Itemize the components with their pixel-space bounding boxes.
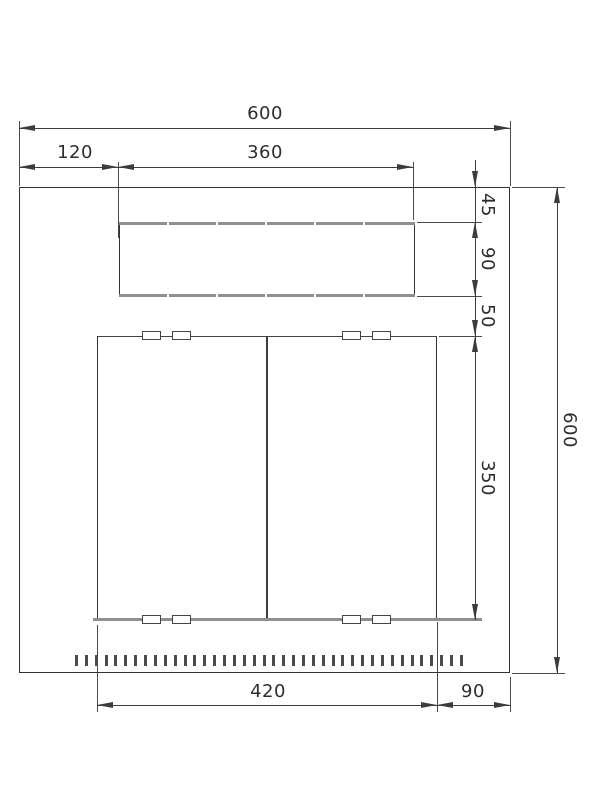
perforation-slot xyxy=(124,655,127,666)
perforation-slot xyxy=(312,655,315,666)
latch-slot xyxy=(342,615,361,624)
dimension-label: 420 xyxy=(250,682,286,702)
perforation-slot xyxy=(381,655,384,666)
perforation-slot xyxy=(332,655,335,666)
top-slot-upper-edge xyxy=(119,222,415,225)
latch-slot xyxy=(372,331,391,340)
arrowhead-icon xyxy=(19,164,35,170)
perforation-slot xyxy=(85,655,88,666)
arrowhead-icon xyxy=(472,280,478,296)
arrowhead-icon xyxy=(472,222,478,238)
dimension-line xyxy=(19,128,510,129)
edge-tick-mark xyxy=(363,294,365,297)
dimension-line xyxy=(19,167,413,168)
perforation-slot xyxy=(430,655,433,666)
top-slot-lower-edge xyxy=(119,294,415,297)
perforation-slot xyxy=(223,655,226,666)
perforation-slot xyxy=(322,655,325,666)
extension-line xyxy=(97,625,98,712)
arrowhead-icon xyxy=(102,164,118,170)
perforation-slot xyxy=(193,655,196,666)
center-divider-line xyxy=(266,336,267,620)
technical-drawing-canvas: 600 120 360 45 90 50 350 600 420 xyxy=(0,0,600,800)
perforation-slot xyxy=(371,655,374,666)
edge-tick-mark xyxy=(265,222,267,225)
edge-tick-mark xyxy=(363,222,365,225)
perforation-slot xyxy=(105,655,108,666)
perforation-slot xyxy=(164,655,167,666)
edge-tick-mark xyxy=(167,222,169,225)
extension-line xyxy=(437,622,438,712)
perforation-slot xyxy=(233,655,236,666)
edge-tick-mark xyxy=(167,294,169,297)
arrowhead-icon xyxy=(472,171,478,187)
perforation-slot xyxy=(351,655,354,666)
arrowhead-icon xyxy=(97,702,113,708)
dimension-label: 90 xyxy=(461,682,485,702)
latch-slot xyxy=(172,615,191,624)
dimension-label: 360 xyxy=(247,143,283,163)
arrowhead-icon xyxy=(397,164,413,170)
perforation-slot xyxy=(391,655,394,666)
top-slot-rectangle xyxy=(119,224,415,296)
perforation-slot xyxy=(460,655,463,666)
dimension-label: 90 xyxy=(477,247,497,271)
dimension-label: 600 xyxy=(247,104,283,124)
dimension-label: 50 xyxy=(477,304,497,328)
perforation-slot xyxy=(282,655,285,666)
arrowhead-icon xyxy=(19,125,35,131)
dimension-line xyxy=(557,187,558,673)
edge-tick-mark xyxy=(216,294,218,297)
perforation-slot xyxy=(302,655,305,666)
perforation-slot xyxy=(144,655,147,666)
perforation-slot xyxy=(184,655,187,666)
dimension-label: 600 xyxy=(559,412,579,448)
perforation-slot xyxy=(401,655,404,666)
latch-slot xyxy=(372,615,391,624)
edge-tick-mark xyxy=(314,222,316,225)
latch-slot xyxy=(142,615,161,624)
perforation-slot xyxy=(114,655,117,666)
dimension-label: 45 xyxy=(477,193,497,217)
arrowhead-icon xyxy=(554,187,560,203)
perforation-slot xyxy=(213,655,216,666)
perforation-slot xyxy=(292,655,295,666)
perforation-slot xyxy=(361,655,364,666)
perforation-slot xyxy=(411,655,414,666)
arrowhead-icon xyxy=(472,336,478,352)
arrowhead-icon xyxy=(472,604,478,620)
edge-tick-mark xyxy=(314,294,316,297)
extension-line xyxy=(118,162,119,238)
perforation-slot xyxy=(253,655,256,666)
arrowhead-icon xyxy=(421,702,437,708)
edge-tick-mark xyxy=(265,294,267,297)
edge-tick-mark xyxy=(216,222,218,225)
arrowhead-icon xyxy=(494,125,510,131)
perforation-slot xyxy=(440,655,443,666)
perforation-slot xyxy=(272,655,275,666)
latch-slot xyxy=(342,331,361,340)
perforation-slot xyxy=(75,655,78,666)
extension-line xyxy=(413,162,414,220)
perforation-slot xyxy=(203,655,206,666)
perforation-slot xyxy=(341,655,344,666)
dimension-label: 350 xyxy=(477,460,497,496)
perforation-slot xyxy=(450,655,453,666)
arrowhead-icon xyxy=(494,702,510,708)
perforation-slot xyxy=(263,655,266,666)
perforation-slot xyxy=(134,655,137,666)
perforation-slot xyxy=(243,655,246,666)
arrowhead-icon xyxy=(554,657,560,673)
perforation-slot xyxy=(95,655,98,666)
latch-slot xyxy=(172,331,191,340)
perforation-slot xyxy=(154,655,157,666)
perforation-slot xyxy=(174,655,177,666)
perforation-slot xyxy=(420,655,423,666)
latch-slot xyxy=(142,331,161,340)
arrowhead-icon xyxy=(118,164,134,170)
arrowhead-icon xyxy=(437,702,453,708)
dimension-label: 120 xyxy=(57,143,93,163)
